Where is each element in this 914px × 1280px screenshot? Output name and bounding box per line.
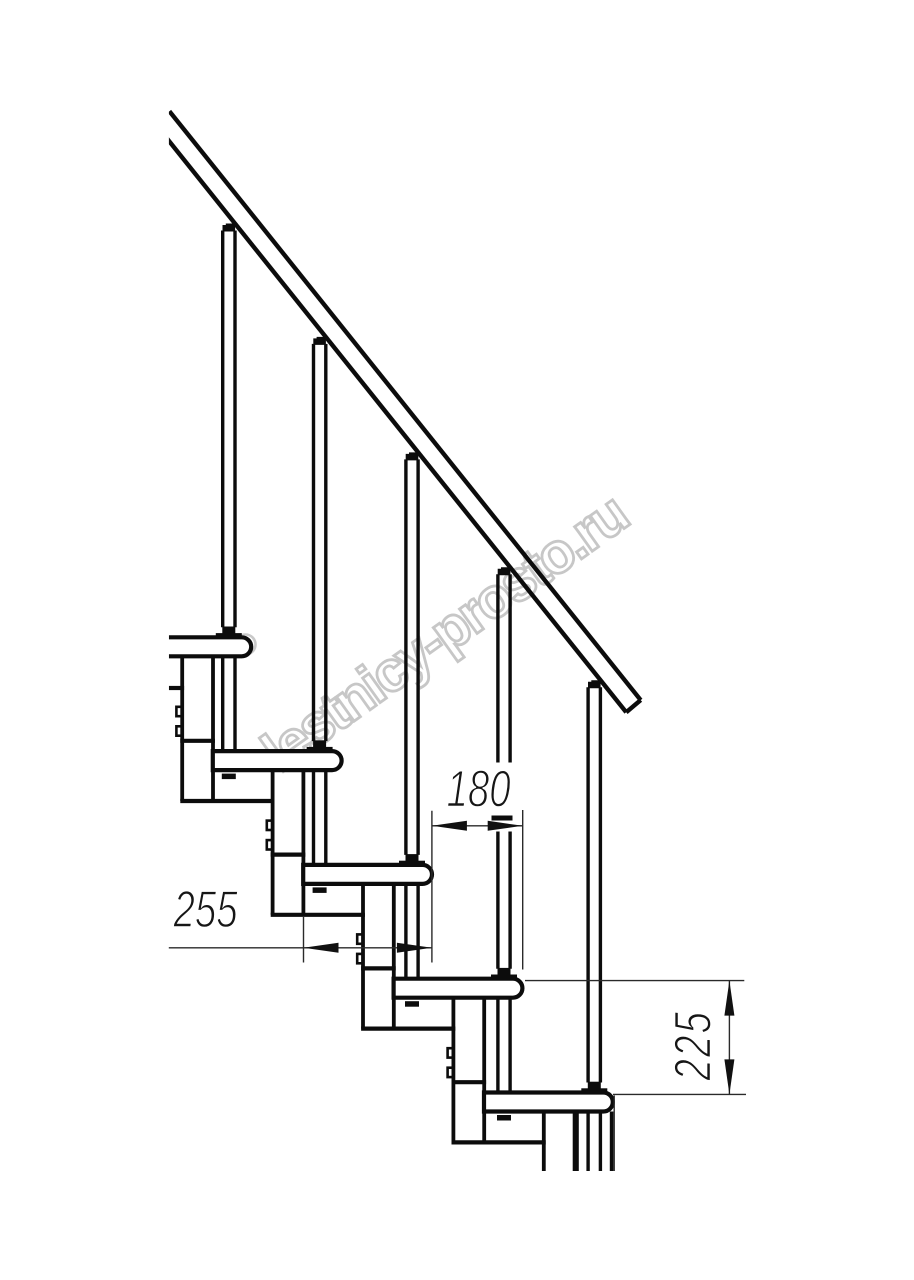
svg-text:255: 255 [173,880,239,938]
svg-text:180: 180 [447,760,512,818]
svg-text:225: 225 [664,1010,722,1081]
svg-text:lestnicy-prosto.ru: lestnicy-prosto.ru [250,482,638,784]
